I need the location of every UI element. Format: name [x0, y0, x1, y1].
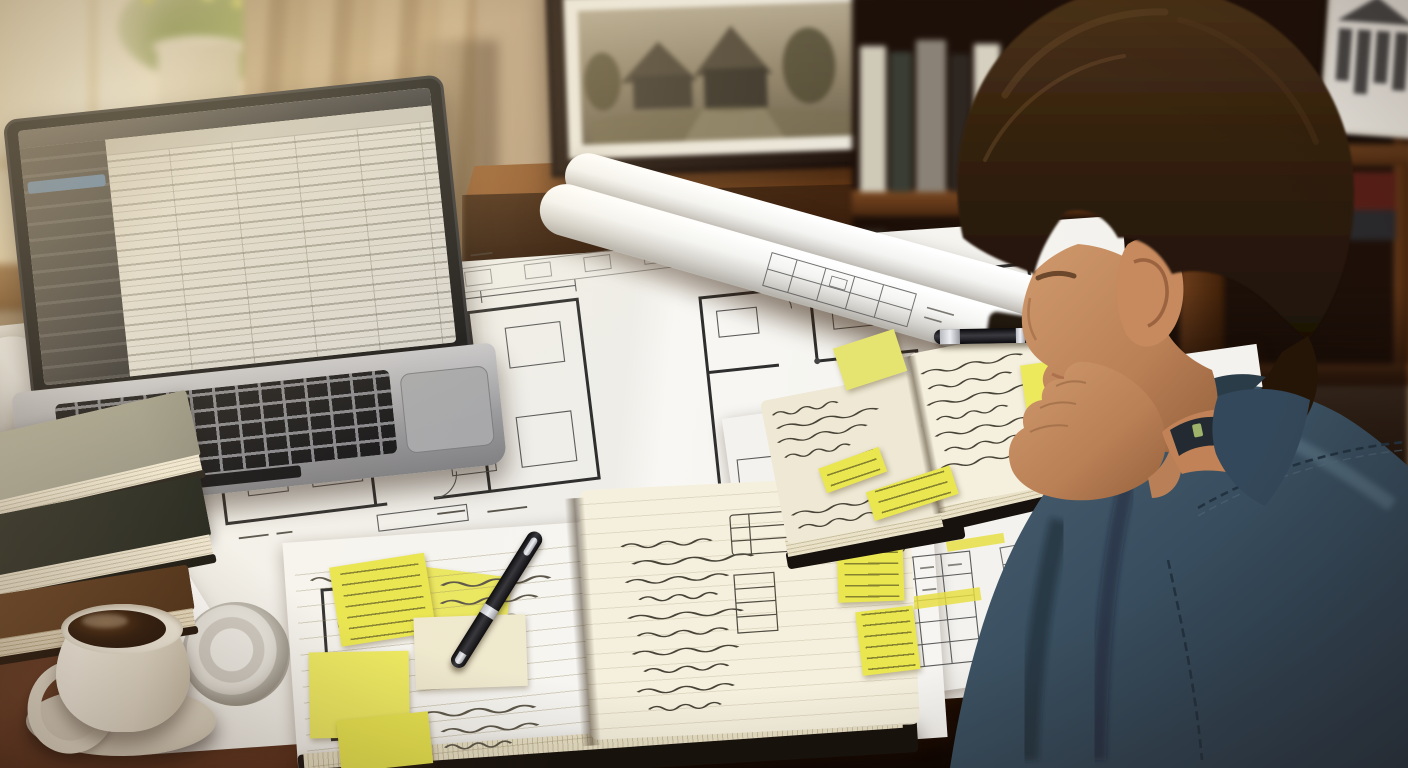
man-reading-plans: [0, 0, 1408, 768]
photo-architect-desk-scene: [0, 0, 1408, 768]
